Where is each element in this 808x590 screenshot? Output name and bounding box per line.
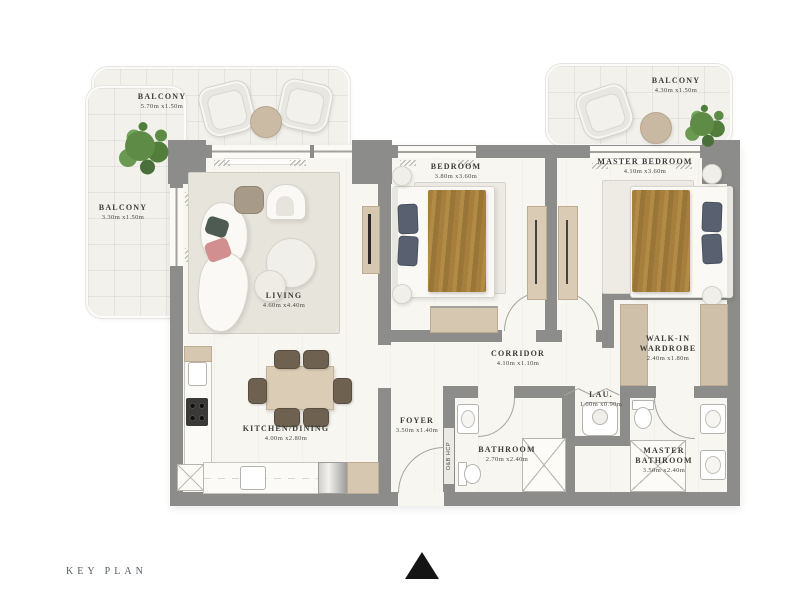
room-dims: 3.80m x3.60m — [431, 173, 482, 180]
bed-pillow — [701, 202, 722, 233]
balcony-table — [250, 106, 282, 138]
room-name: CORRIDOR — [491, 349, 545, 359]
wardrobe-handle — [535, 220, 537, 284]
room-dims: 3.50m x1.40m — [387, 427, 447, 434]
room-dims: 5.70m x1.50m — [138, 103, 186, 110]
room-name: LAU. — [580, 390, 623, 400]
room-name: MASTER BEDROOM — [597, 157, 692, 167]
nightstand — [702, 286, 722, 306]
wall-segment — [536, 330, 562, 342]
toilet-bowl — [464, 464, 481, 484]
room-label-bedroom: BEDROOM 3.80m x3.60m — [431, 162, 482, 180]
key-plan-label: KEY PLAN — [66, 566, 147, 577]
room-label-master-bathroom: MASTER BATHROOM 3.50m x2.40m — [625, 446, 703, 474]
room-name: BALCONY — [138, 92, 186, 102]
room-label-walk-in-wardrobe: WALK-IN WARDROBE 2.40m x1.80m — [632, 334, 704, 362]
bed-pillow — [397, 235, 419, 266]
sink-basin — [461, 410, 475, 428]
toilet-bowl — [634, 407, 652, 429]
room-name: BATHROOM — [478, 445, 535, 455]
room-dims: 2.70m x2.40m — [478, 456, 535, 463]
plant — [690, 112, 714, 136]
window-opening — [314, 145, 352, 158]
wardrobe — [558, 206, 578, 300]
bed-blanket — [632, 190, 690, 292]
room-label-kitchen-dining: KITCHEN/DINING 4.00m x2.80m — [243, 424, 330, 442]
room-label-balcony-top-right: BALCONY 4.30m x1.50m — [652, 76, 700, 94]
armchair-seat — [276, 196, 294, 216]
balcony-table — [640, 112, 672, 144]
dining-chair — [303, 350, 329, 369]
window-hatch — [290, 160, 306, 166]
room-name: FOYER — [387, 416, 447, 426]
room-label-laundry: LAU. 1.00m x0.90m — [580, 390, 623, 408]
room-dims: 3.50m x2.40m — [625, 467, 703, 474]
room-dims: 4.30m x1.50m — [652, 87, 700, 94]
dining-chair — [274, 350, 300, 369]
service-shaft — [177, 464, 204, 491]
bed-pillow — [397, 204, 418, 235]
nightstand — [702, 164, 722, 184]
dining-chair — [248, 378, 267, 404]
room-dims: 4.60m x4.40m — [263, 302, 306, 309]
wall-segment — [378, 388, 391, 492]
pouf — [234, 186, 264, 214]
dining-table — [266, 366, 334, 410]
room-name: MASTER BATHROOM — [625, 446, 703, 466]
dining-chair — [333, 378, 352, 404]
room-name: BALCONY — [652, 76, 700, 86]
room-label-master-bedroom: MASTER BEDROOM 4.10m x3.60m — [597, 157, 692, 175]
tv-screen — [368, 214, 371, 264]
wall-segment — [602, 298, 614, 348]
entry-door-opening — [398, 492, 444, 506]
kitchen-cabinet — [184, 346, 212, 362]
kitchen-sink — [188, 362, 207, 386]
room-name: KITCHEN/DINING — [243, 424, 330, 434]
wall-utility-label-text: D&B HCP — [446, 442, 452, 470]
room-name: LIVING — [263, 291, 306, 301]
window-opening — [170, 188, 183, 266]
room-name: BEDROOM — [431, 162, 482, 172]
wall-segment — [170, 492, 740, 506]
room-dims: 2.40m x1.80m — [632, 355, 704, 362]
nightstand — [392, 166, 412, 186]
room-dims: 3.30m x1.50m — [99, 214, 147, 221]
fridge — [318, 462, 347, 494]
wardrobe-handle — [566, 220, 568, 284]
room-dims: 4.10m x1.10m — [491, 360, 545, 367]
room-label-foyer: FOYER 3.50m x1.40m — [387, 416, 447, 434]
wall-segment — [630, 386, 656, 398]
floor-plan-canvas: D&B HCP BALCONY 5.70m x1.50m BALCONY 3.3… — [0, 0, 808, 590]
wall-segment — [694, 386, 727, 398]
cooktop — [186, 398, 208, 426]
nightstand — [392, 284, 412, 304]
window-opening — [398, 146, 476, 158]
window-opening — [212, 145, 310, 158]
room-label-bathroom: BATHROOM 2.70m x2.40m — [478, 445, 535, 463]
wall-segment — [514, 386, 562, 398]
plant — [125, 131, 155, 161]
dishwasher — [240, 466, 266, 490]
curtain-sill — [224, 158, 300, 165]
room-label-living: LIVING 4.60m x4.40m — [263, 291, 306, 309]
bed-blanket — [428, 190, 486, 292]
room-label-corridor: CORRIDOR 4.10m x1.10m — [491, 349, 545, 367]
window-hatch — [214, 160, 230, 166]
north-arrow-icon — [405, 552, 439, 579]
tv-console — [362, 206, 380, 274]
room-label-balcony-top-left: BALCONY 5.70m x1.50m — [138, 92, 186, 110]
wardrobe — [527, 206, 547, 300]
washing-machine-door — [592, 409, 608, 425]
wall-segment — [443, 386, 478, 398]
dresser — [430, 306, 498, 333]
kitchen-cabinet — [347, 462, 379, 494]
bed-pillow — [701, 233, 723, 264]
wall-utility-label: D&B HCP — [444, 428, 454, 484]
sink-basin — [705, 456, 721, 474]
sink-basin — [705, 410, 721, 428]
room-label-balcony-left: BALCONY 3.30m x1.50m — [99, 203, 147, 221]
room-name: WALK-IN WARDROBE — [632, 334, 704, 354]
walkin-wardrobe-unit — [700, 304, 728, 386]
room-name: BALCONY — [99, 203, 147, 213]
room-dims: 1.00m x0.90m — [580, 401, 623, 408]
room-dims: 4.00m x2.80m — [243, 435, 330, 442]
room-dims: 4.10m x3.60m — [597, 168, 692, 175]
